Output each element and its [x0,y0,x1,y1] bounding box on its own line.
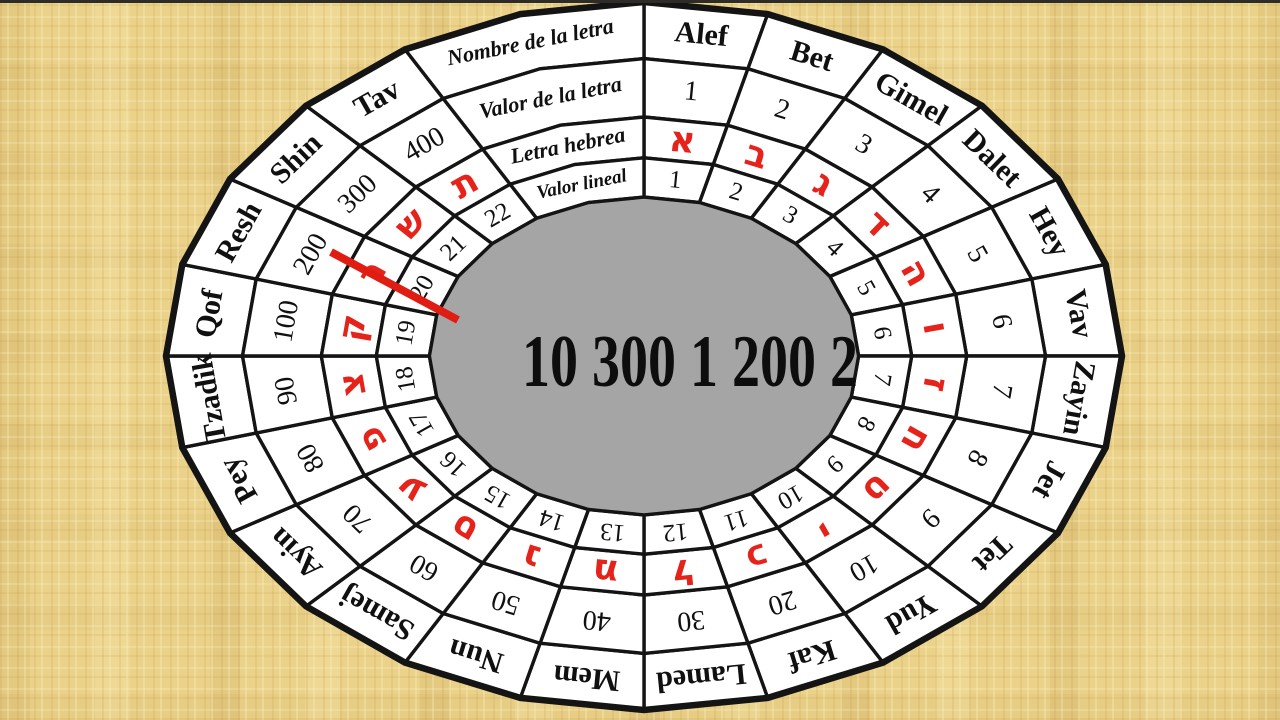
label-mem-value: 40 [581,604,612,638]
letterbox-top-edge [0,0,1280,3]
label-mem-hebrew: מ [591,550,621,593]
center-value: 10 300 1 200 2 [522,321,858,403]
label-tzadik-lineal: 18 [390,364,421,393]
label-alef-lineal: 1 [668,166,683,194]
label-lamed-lineal: 12 [662,517,690,546]
label-tzadik-value: 90 [269,374,304,407]
label-alef-name: Alef [673,15,730,53]
label-lamed-value: 30 [676,604,707,638]
label-qof-lineal: 19 [390,318,421,347]
label-lamed-hebrew: ל [670,550,696,593]
label-mem-lineal: 13 [599,517,627,546]
papyrus-background: { "wheel": { "row_labels": { "name": "No… [0,0,1280,720]
hebrew-alphabet-wheel-diagram: Alef1א1Bet2ב2Gimel3ג3Dalet4ד4Hey5ה5Vav6ו… [0,0,1280,720]
label-mem-name: Mem [552,658,622,697]
label-alef-hebrew: א [667,119,697,162]
